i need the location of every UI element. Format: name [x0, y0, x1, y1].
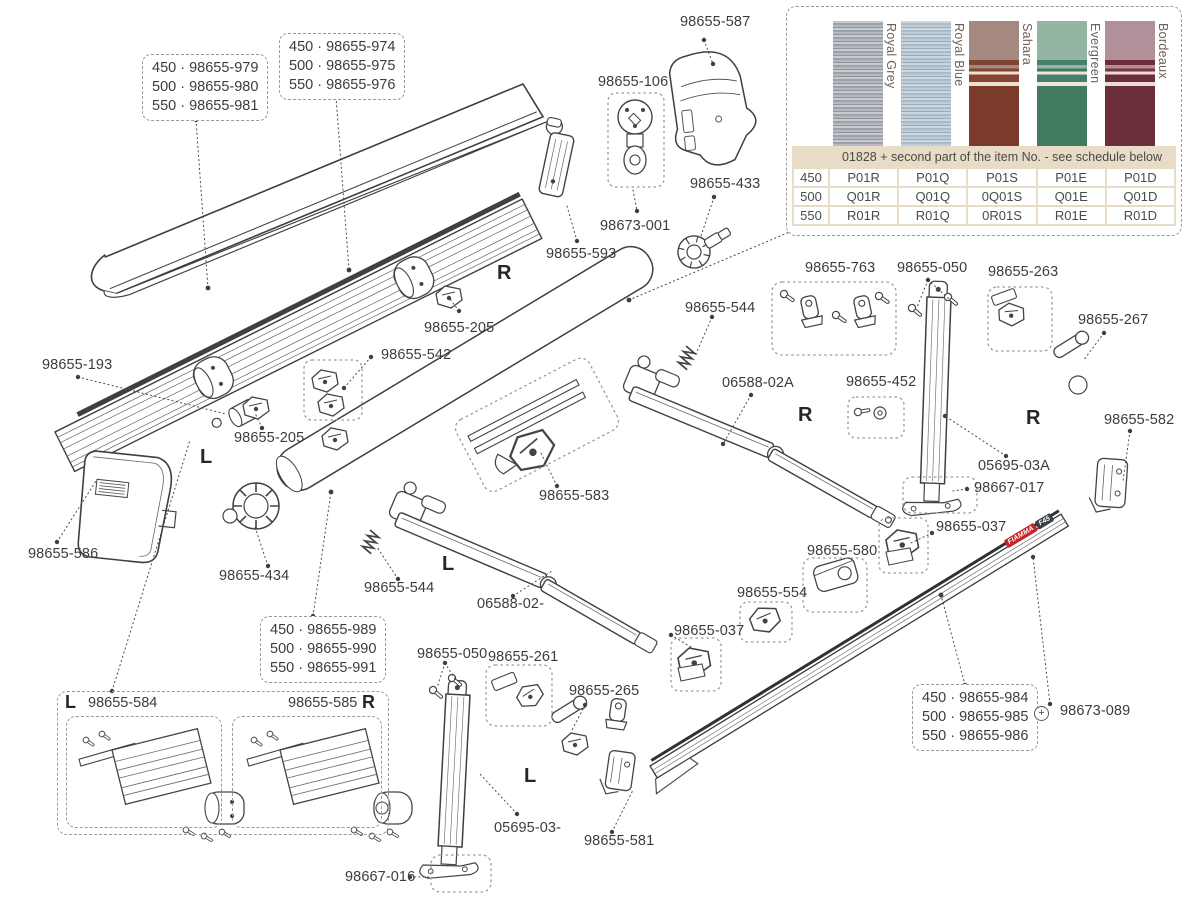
part-label-98655-554: 98655-554: [737, 585, 807, 601]
part-label-98655-193: 98655-193: [42, 357, 112, 373]
part-label-98655-205-top: 98655-205: [424, 320, 494, 336]
fabric-code: Q01D: [1107, 188, 1174, 205]
part-label-98655-584: 98655-584: [88, 695, 157, 711]
part-label-98667-017: 98667-017: [974, 480, 1044, 496]
marker-left-arm: L: [442, 553, 454, 576]
part-label-98655-587: 98655-587: [680, 14, 750, 30]
marker-right-leg: R: [1026, 407, 1040, 430]
marker-left-leg: L: [524, 765, 536, 788]
fabric-code: 0R01S: [968, 207, 1035, 224]
fabric-code: P01E: [1038, 169, 1105, 186]
support-leg-left-05695-03: [419, 679, 487, 881]
part-label-98655-544-right: 98655-544: [685, 300, 755, 316]
fabric-table-header: 01828 + second part of the item No. - se…: [830, 148, 1174, 167]
part-label-98655-583: 98655-583: [539, 488, 609, 504]
part-label-98655-050-bottom: 98655-050: [417, 646, 487, 662]
part-label-98655-580: 98655-580: [807, 543, 877, 559]
part-label-06588-02: 06588-02-: [477, 596, 544, 612]
part-label-98655-433: 98655-433: [690, 176, 760, 192]
ratchet-knob-98655-434: [223, 483, 279, 529]
fabric-name-royal-grey: Royal Grey: [884, 23, 898, 89]
part-label-98655-267: 98655-267: [1078, 312, 1148, 328]
part-label-98655-037-left: 98655-037: [674, 623, 744, 639]
part-label-98655-434: 98655-434: [219, 568, 289, 584]
roller-tube-drawing: [269, 239, 660, 498]
fabric-row-size: 500: [794, 188, 828, 205]
fabric-name-bordeaux: Bordeaux: [1156, 23, 1170, 79]
kit-right-marker: R: [362, 692, 375, 713]
part-label-98655-763: 98655-763: [805, 260, 875, 276]
part-label-05695-03: 05695-03-: [494, 820, 561, 836]
part-label-98655-544-left: 98655-544: [364, 580, 434, 596]
part-label-98655-263: 98655-263: [988, 264, 1058, 280]
fabric-row-size: 550: [794, 207, 828, 224]
fabric-code: P01D: [1107, 169, 1174, 186]
fabric-swatch-evergreen: [1037, 21, 1087, 151]
part-label-98655-265: 98655-265: [569, 683, 639, 699]
knuckle-joint-98655-106: [618, 100, 652, 174]
part-label-98655-261: 98655-261: [488, 649, 558, 665]
fabric-code: P01Q: [899, 169, 966, 186]
fabric-code-table: 01828 + second part of the item No. - se…: [792, 146, 1176, 226]
part-label-98673-001: 98673-001: [600, 218, 670, 234]
part-label-98655-581: 98655-581: [584, 833, 654, 849]
fabric-swatch-royal-grey: [833, 21, 883, 151]
fabric-name-sahara: Sahara: [1020, 23, 1034, 65]
marker-right-case: R: [497, 262, 511, 285]
size-box-lid: 450 · 98655-979 500 · 98655-980 550 · 98…: [142, 54, 268, 121]
fabric-name-royal-blue: Royal Blue: [952, 23, 966, 86]
fabric-swatch-sahara: [969, 21, 1019, 151]
size-box-roller: 450 · 98655-989 500 · 98655-990 550 · 98…: [260, 616, 386, 683]
size-box-leadbar: 450 · 98655-984 500 · 98655-985 550 · 98…: [912, 684, 1038, 751]
fabric-name-evergreen: Evergreen: [1088, 23, 1102, 83]
part-label-98667-016: 98667-016: [345, 869, 415, 885]
fabric-code: R01E: [1038, 207, 1105, 224]
plus-join-icon: +: [1034, 706, 1049, 721]
part-label-98655-050-top: 98655-050: [897, 260, 967, 276]
part-label-98673-089: 98673-089: [1060, 703, 1130, 719]
fabric-code: P01S: [968, 169, 1035, 186]
part-label-98655-593: 98655-593: [546, 246, 616, 262]
size-box-case: 450 · 98655-974 500 · 98655-975 550 · 98…: [279, 33, 405, 100]
bracket-98655-593: [532, 117, 577, 198]
fabric-swatch-bordeaux: [1105, 21, 1155, 151]
part-label-98655-582: 98655-582: [1104, 412, 1174, 428]
part-label-98655-542: 98655-542: [381, 347, 451, 363]
part-label-98655-106: 98655-106: [598, 74, 668, 90]
kit-left-marker: L: [65, 692, 76, 713]
part-label-98655-586: 98655-586: [28, 546, 98, 562]
part-label-98655-037-right: 98655-037: [936, 519, 1006, 535]
fabric-table-corner-cell: [794, 148, 828, 167]
marker-right-arm: R: [798, 404, 812, 427]
awning-arm-left-06588-02: [378, 479, 678, 655]
fabric-swatch-royal-blue: [901, 21, 951, 151]
fabric-code: R01Q: [899, 207, 966, 224]
fabric-code: R01R: [830, 207, 897, 224]
end-cap-kit-right-box: [232, 716, 382, 828]
fabric-code: Q01E: [1038, 188, 1105, 205]
part-label-05695-03A: 05695-03A: [978, 458, 1050, 474]
fabric-row-size: 450: [794, 169, 828, 186]
fabric-code: Q01Q: [899, 188, 966, 205]
fabric-code: R01D: [1107, 207, 1174, 224]
part-label-06588-02A: 06588-02A: [722, 375, 794, 391]
part-label-98655-205-left: 98655-205: [234, 430, 304, 446]
marker-left-case: L: [200, 446, 212, 469]
fabric-code: Q01R: [830, 188, 897, 205]
fabric-code: 0Q01S: [968, 188, 1035, 205]
support-leg-right-05695-03A: [902, 280, 968, 517]
part-label-98655-585: 98655-585: [288, 695, 357, 711]
fabric-code: P01R: [830, 169, 897, 186]
part-label-98655-452: 98655-452: [846, 374, 916, 390]
end-cap-kit-left-box: [66, 716, 222, 828]
roller-end-plug-98655-433: [672, 217, 737, 274]
exploded-parts-diagram: 98655-587 98655-106 98673-001 98655-433 …: [0, 0, 1200, 900]
